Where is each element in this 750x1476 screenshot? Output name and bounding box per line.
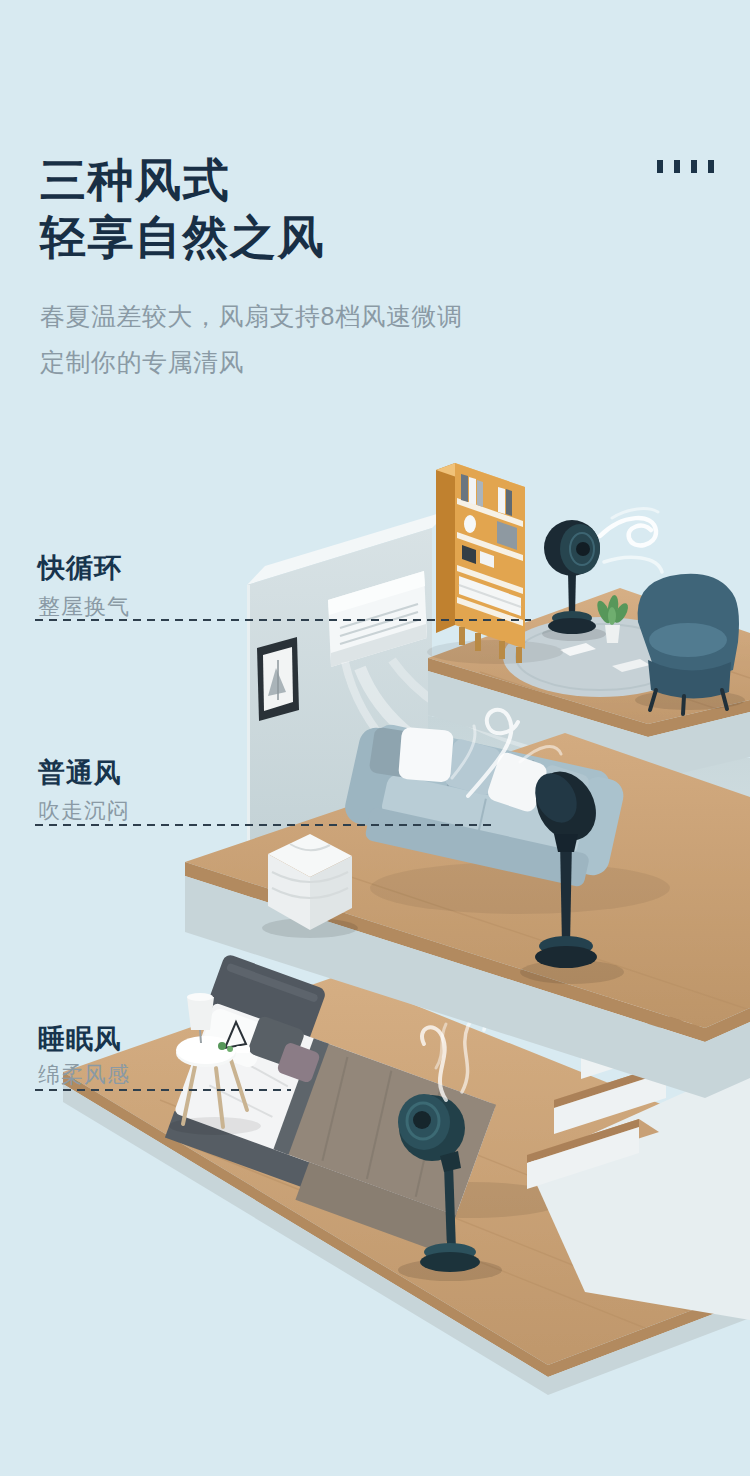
mode-desc-normal-wind: 吹走沉闷 <box>38 796 130 826</box>
mode-label-sleep-wind: 睡眠风 <box>38 1021 122 1057</box>
decor-dash-icon <box>708 160 714 173</box>
mode-label-fast-circulation: 快循环 <box>38 550 122 586</box>
picture-frame <box>257 637 299 721</box>
subtitle-line-2: 定制你的专属清风 <box>40 339 462 385</box>
decor-dash-icon <box>691 160 697 173</box>
mode-label-normal-wind: 普通风 <box>38 755 122 791</box>
mode-desc-fast-circulation: 整屋换气 <box>38 592 130 622</box>
page-subtitle: 春夏温差较大，风扇支持8档风速微调 定制你的专属清风 <box>40 293 462 385</box>
title-line-2: 轻享自然之风 <box>40 209 325 266</box>
decor-dash-icon <box>657 160 663 173</box>
decor-dash-icon <box>674 160 680 173</box>
guide-line-normal-wind <box>35 824 493 826</box>
title-line-1: 三种风式 <box>40 152 325 209</box>
mode-desc-sleep-wind: 绵柔风感 <box>38 1060 130 1090</box>
page-title: 三种风式 轻享自然之风 <box>40 152 325 266</box>
decor-dots <box>657 160 714 173</box>
wind-swirl-top <box>600 509 662 572</box>
guide-line-fast-circulation <box>35 619 531 621</box>
armchair <box>635 574 745 714</box>
subtitle-line-1: 春夏温差较大，风扇支持8档风速微调 <box>40 293 462 339</box>
product-infographic-page: 三种风式 轻享自然之风 春夏温差较大，风扇支持8档风速微调 定制你的专属清风 快… <box>0 0 750 1476</box>
guide-line-sleep-wind <box>35 1089 291 1091</box>
